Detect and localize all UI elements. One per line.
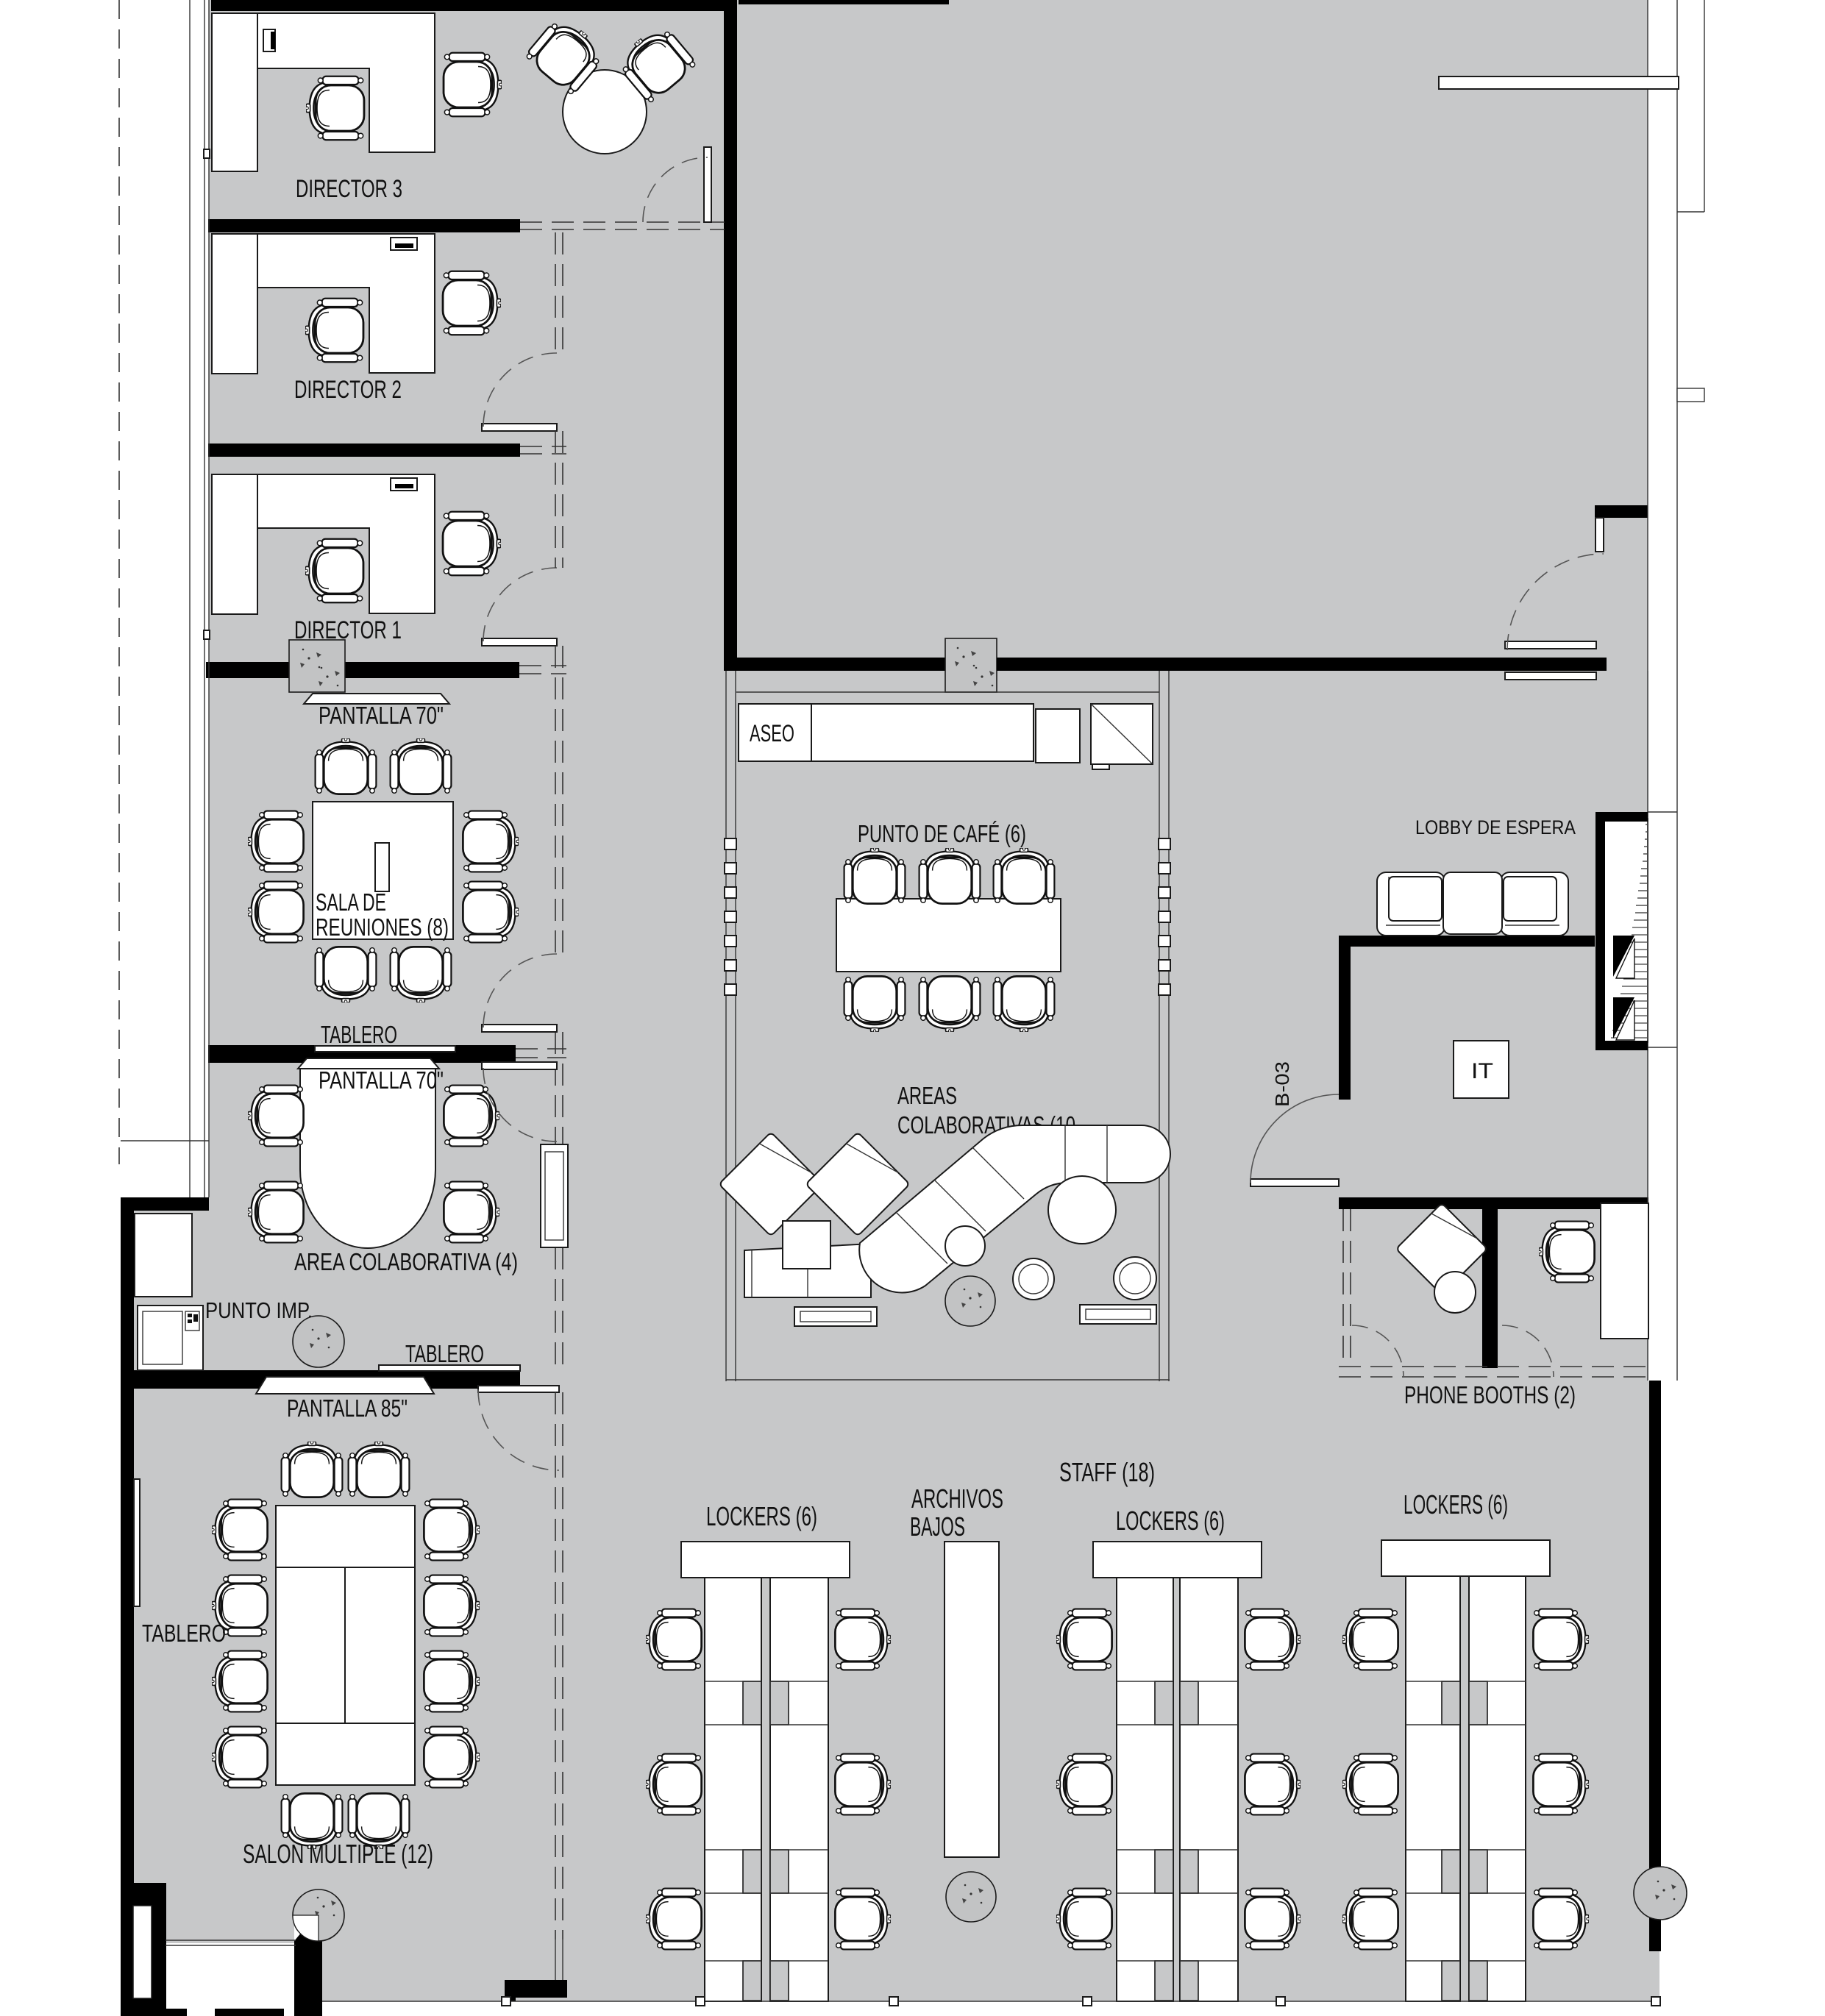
svg-text:REUNIONES (8): REUNIONES (8) <box>316 913 449 941</box>
svg-text:B-03: B-03 <box>1271 1061 1293 1107</box>
svg-text:SALA DE: SALA DE <box>316 888 386 916</box>
svg-text:LOBBY DE ESPERA: LOBBY DE ESPERA <box>1415 816 1576 838</box>
svg-text:STAFF (18): STAFF (18) <box>1059 1457 1155 1487</box>
svg-text:AREAS: AREAS <box>897 1082 957 1109</box>
svg-text:TABLERO: TABLERO <box>405 1340 484 1367</box>
svg-text:SALON MULTIPLE (12): SALON MULTIPLE (12) <box>243 1839 433 1869</box>
svg-text:TABLERO: TABLERO <box>321 1021 397 1048</box>
svg-text:PUNTO DE CAFÉ (6): PUNTO DE CAFÉ (6) <box>858 820 1026 847</box>
svg-text:PANTALLA 85": PANTALLA 85" <box>287 1395 408 1422</box>
svg-text:LOCKERS (6): LOCKERS (6) <box>1116 1506 1225 1536</box>
svg-text:AREA COLABORATIVA (4): AREA COLABORATIVA (4) <box>294 1248 518 1275</box>
svg-text:ARCHIVOS: ARCHIVOS <box>911 1483 1003 1514</box>
svg-text:PANTALLA 70": PANTALLA 70" <box>319 702 444 729</box>
svg-text:DIRECTOR 2: DIRECTOR 2 <box>294 376 402 404</box>
svg-text:DIRECTOR 3: DIRECTOR 3 <box>296 175 402 203</box>
svg-text:TABLERO: TABLERO <box>142 1620 226 1647</box>
svg-text:LOCKERS (6): LOCKERS (6) <box>706 1501 817 1531</box>
svg-text:PANTALLA 70": PANTALLA 70" <box>319 1066 444 1094</box>
svg-text:BAJOS: BAJOS <box>910 1511 965 1542</box>
svg-text:ASEO: ASEO <box>750 720 794 747</box>
svg-text:PUNTO IMP.: PUNTO IMP. <box>205 1297 313 1323</box>
svg-text:PHONE BOOTHS (2): PHONE BOOTHS (2) <box>1404 1381 1576 1408</box>
svg-text:LOCKERS (6): LOCKERS (6) <box>1404 1489 1508 1520</box>
svg-text:IT: IT <box>1471 1059 1493 1083</box>
svg-text:DIRECTOR 1: DIRECTOR 1 <box>294 616 402 644</box>
